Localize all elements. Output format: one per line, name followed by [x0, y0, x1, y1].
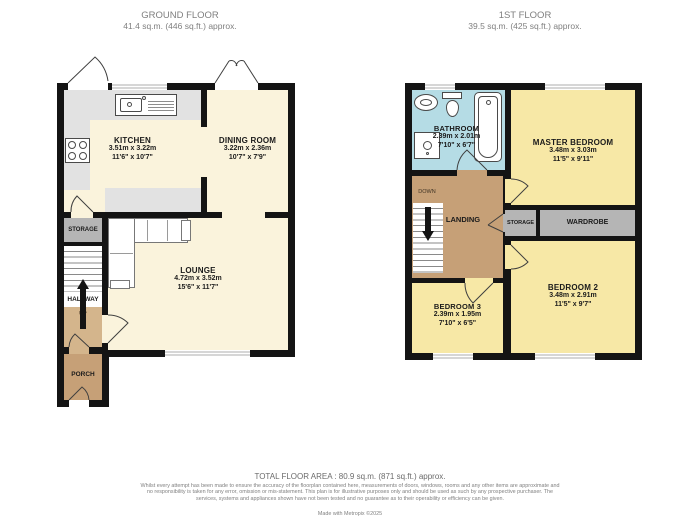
- gf-storage-label: STORAGE: [64, 218, 102, 242]
- up-arrow-stem: [80, 288, 86, 329]
- french-door-arc-left: [229, 61, 237, 66]
- bathroom-metric: 2.39m x 2.01m: [409, 133, 504, 142]
- sink-drainer-lines: [148, 99, 174, 113]
- kitchen-window: [112, 83, 167, 90]
- dining-name: DINING ROOM: [207, 136, 288, 145]
- bathroom-imperial: 7'10" x 6'7": [409, 142, 504, 151]
- ground-floor-header: GROUND FLOOR 41.4 sq.m. (446 sq.ft.) app…: [40, 10, 320, 31]
- bedroom3-name: BEDROOM 3: [412, 302, 503, 311]
- lounge-name: LOUNGE: [108, 266, 288, 275]
- sofa-seam: [147, 220, 148, 241]
- lounge-door-opening: [102, 315, 108, 343]
- french-door-leaf-right: [244, 61, 258, 83]
- bedroom3-label: BEDROOM 3 2.39m x 1.95m 7'10" x 6'5": [412, 302, 503, 328]
- ff-storage-label: STORAGE: [505, 210, 536, 236]
- bathroom-window: [425, 83, 455, 90]
- back-door-opening: [68, 83, 108, 90]
- kitchen-name: KITCHEN: [64, 136, 201, 145]
- ground-floor-plan: KITCHEN 3.51m x 3.22m 11'6" x 10'7" DINI…: [57, 83, 295, 407]
- master-metric: 3.48m x 3.03m: [511, 147, 635, 156]
- kitchen-metric: 3.51m x 3.22m: [64, 145, 201, 154]
- bedroom2-imperial: 11'5" x 9'7": [511, 301, 635, 310]
- master-imperial: 11'5" x 9'11": [511, 156, 635, 165]
- dining-metric: 3.22m x 2.36m: [207, 145, 288, 154]
- floorplan-canvas: GROUND FLOOR 41.4 sq.m. (446 sq.ft.) app…: [0, 0, 700, 521]
- landing-label: LANDING: [431, 215, 495, 224]
- porch-label: PORCH: [64, 371, 102, 378]
- bathroom-label: BATHROOM 2.39m x 2.01m 7'10" x 6'7": [409, 124, 504, 150]
- sofa-seam: [110, 253, 133, 254]
- bathroom-name: BATHROOM: [409, 124, 504, 133]
- kitchen-label: KITCHEN 3.51m x 3.22m 11'6" x 10'7": [64, 136, 201, 162]
- bedroom3-metric: 2.39m x 1.95m: [412, 311, 503, 320]
- bathtub-tap: [486, 100, 491, 105]
- french-door-arc-right: [236, 61, 244, 66]
- bedroom2-door-opening: [505, 245, 511, 269]
- credit-text: Made with Metropix ©2025: [0, 511, 700, 517]
- sink-faucet: [142, 96, 146, 100]
- dining-lounge-opening: [222, 212, 265, 218]
- bedroom3-door-opening: [465, 278, 493, 283]
- ground-floor-title: GROUND FLOOR: [40, 10, 320, 21]
- wardrobe-label: WARDROBE: [540, 210, 635, 236]
- first-floor-area: 39.5 sq.m. (425 sq.ft.) approx.: [385, 21, 665, 31]
- ground-floor-area: 41.4 sq.m. (446 sq.ft.) approx.: [40, 21, 320, 31]
- french-door-opening: [215, 83, 258, 90]
- dining-imperial: 10'7" x 7'9": [207, 154, 288, 163]
- lounge-imperial: 15'6" x 11'7": [108, 284, 288, 293]
- basin: [414, 94, 438, 111]
- first-floor-title: 1ST FLOOR: [385, 10, 665, 21]
- toilet-cistern: [442, 92, 462, 99]
- vanity-drain: [426, 152, 429, 155]
- sofa-armrest-right: [181, 220, 191, 241]
- sofa-seam: [167, 220, 168, 241]
- kitchen-imperial: 11'6" x 10'7": [64, 154, 201, 163]
- down-label: DOWN: [407, 189, 447, 195]
- bedroom2-window: [535, 353, 595, 360]
- bedroom3-window: [433, 353, 473, 360]
- front-door-opening: [69, 400, 89, 407]
- bedroom2-metric: 3.48m x 2.91m: [511, 292, 635, 301]
- bedroom2-name: BEDROOM 2: [511, 283, 635, 292]
- master-label: MASTER BEDROOM 3.48m x 3.03m 11'5" x 9'1…: [511, 138, 635, 164]
- bedroom2-label: BEDROOM 2 3.48m x 2.91m 11'5" x 9'7": [511, 283, 635, 309]
- disclaimer-text: Whilst every attempt has been made to en…: [140, 483, 560, 502]
- dining-label: DINING ROOM 3.22m x 2.36m 10'7" x 7'9": [207, 136, 288, 162]
- lounge-window: [165, 350, 250, 357]
- master-door-opening: [505, 179, 511, 203]
- master-name: MASTER BEDROOM: [511, 138, 635, 147]
- sink-drain: [127, 102, 132, 107]
- down-arrow-stem: [425, 207, 431, 231]
- bedroom3-imperial: 7'10" x 6'5": [412, 320, 503, 329]
- french-door-leaf-left: [215, 61, 229, 83]
- first-floor-plan: BATHROOM 2.39m x 2.01m 7'10" x 6'7" MAST…: [405, 83, 642, 360]
- kitchen-counter-bottom: [105, 188, 201, 212]
- hall-porch-door-opening: [69, 347, 89, 354]
- lounge-label: LOUNGE 4.72m x 3.52m 15'6" x 11'7": [108, 266, 288, 292]
- master-window: [545, 83, 605, 90]
- total-floor-area: TOTAL FLOOR AREA : 80.9 sq.m. (871 sq.ft…: [0, 472, 700, 481]
- down-arrow-head: [422, 231, 434, 241]
- sink-unit: [115, 94, 177, 116]
- lounge-metric: 4.72m x 3.52m: [108, 275, 288, 284]
- bathroom-door-opening: [457, 170, 487, 176]
- back-door-swing: [68, 57, 108, 83]
- first-floor-header: 1ST FLOOR 39.5 sq.m. (425 sq.ft.) approx…: [385, 10, 665, 31]
- basin-bowl: [420, 99, 432, 106]
